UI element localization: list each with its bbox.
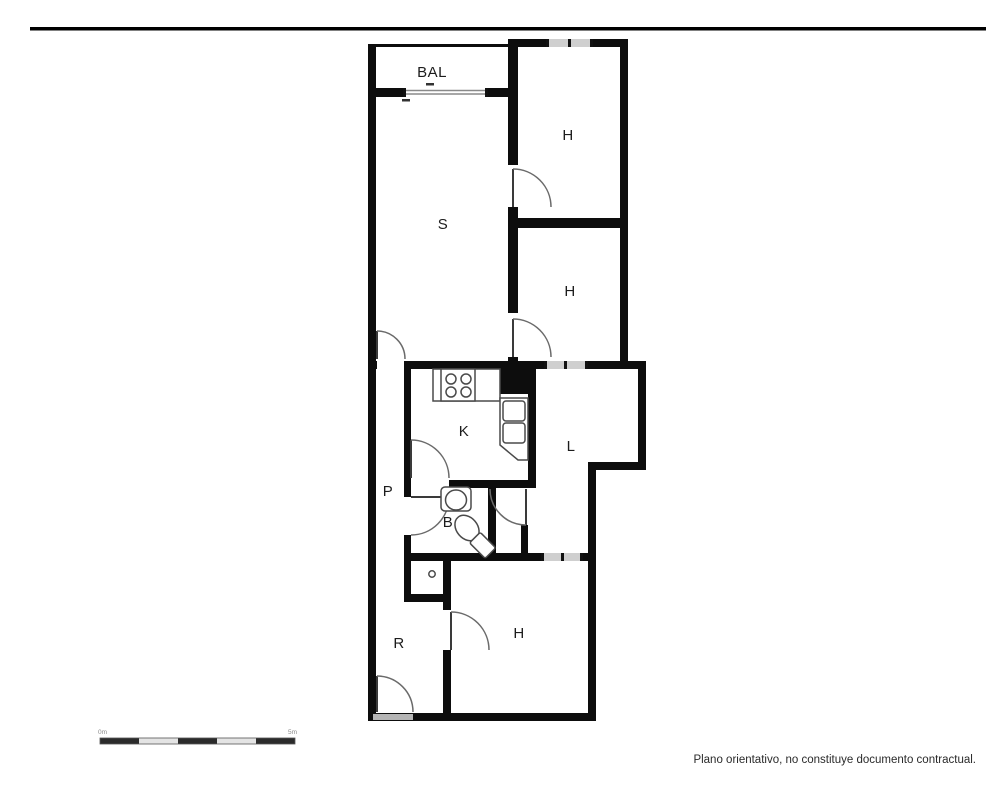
shower-drain — [429, 571, 435, 577]
wall-segment — [588, 361, 646, 369]
stove-counter — [433, 369, 500, 401]
wall-segment — [404, 594, 451, 602]
wall-segment — [588, 462, 596, 721]
floorplan-page: BAL H S H K L P B R H 0m 5m Plano orient… — [0, 0, 1000, 800]
room-label-hallway: P — [383, 483, 394, 500]
scale-segment — [256, 738, 295, 744]
scale-start-label: 0m — [98, 729, 107, 736]
room-label-living-room: S — [438, 216, 449, 233]
room-labels: BAL H S H K L P B R H — [383, 64, 576, 652]
scale-segment — [217, 738, 256, 744]
scale-bar: 0m 5m — [98, 729, 297, 744]
wall-segment — [487, 88, 510, 97]
wall-segment — [620, 39, 628, 368]
scale-segment — [100, 738, 139, 744]
wall-segment — [368, 44, 510, 47]
door-bedroom-bottom — [451, 612, 489, 650]
wall-segment — [583, 553, 596, 561]
wall-segment — [368, 361, 377, 369]
door-entry — [377, 676, 413, 712]
kitchen-duct — [500, 361, 530, 394]
glass-door-mark — [402, 99, 410, 102]
washbasin — [441, 487, 471, 511]
balcony-glass-door — [402, 83, 488, 102]
wall-segment — [443, 650, 451, 721]
room-label-living-area: L — [567, 438, 576, 455]
top-rule — [30, 27, 986, 31]
wall-segment — [508, 47, 518, 165]
wall-segment — [368, 44, 376, 721]
glass-door-mark — [426, 83, 434, 86]
kitchen-sink — [500, 398, 528, 460]
wall-segment — [508, 218, 628, 228]
window-bedroom-middle — [544, 361, 588, 369]
disclaimer: Plano orientativo, no constituye documen… — [693, 754, 976, 766]
scale-end-label: 5m — [288, 729, 297, 736]
wall-segment — [404, 361, 411, 480]
walls — [368, 39, 646, 721]
window-bedroom-top — [546, 39, 593, 47]
window-bedroom-bottom — [541, 553, 583, 561]
entry-threshold — [373, 714, 413, 720]
floor-plan: BAL H S H K L P B R H — [368, 39, 646, 721]
room-label-entry-hall: R — [393, 635, 404, 652]
wall-segment — [404, 553, 542, 561]
door-kitchen — [411, 440, 449, 478]
fixtures — [429, 369, 528, 577]
wall-segment — [638, 361, 646, 470]
room-label-kitchen: K — [459, 423, 470, 440]
scale-segment — [139, 738, 178, 744]
room-label-balcony: BAL — [417, 64, 447, 81]
wall-segment — [404, 535, 411, 594]
room-label-bathroom: B — [443, 514, 454, 531]
room-label-bedroom-bottom: H — [513, 625, 524, 642]
room-label-bedroom-top: H — [562, 127, 573, 144]
door-bedroom-top — [513, 169, 551, 207]
wall-segment — [368, 88, 404, 97]
scale-segment — [178, 738, 217, 744]
room-label-bedroom-middle: H — [564, 283, 575, 300]
door-bedroom-middle — [513, 319, 551, 357]
wall-segment — [588, 462, 646, 470]
door-living-room — [377, 331, 405, 359]
wall-segment — [404, 480, 411, 497]
